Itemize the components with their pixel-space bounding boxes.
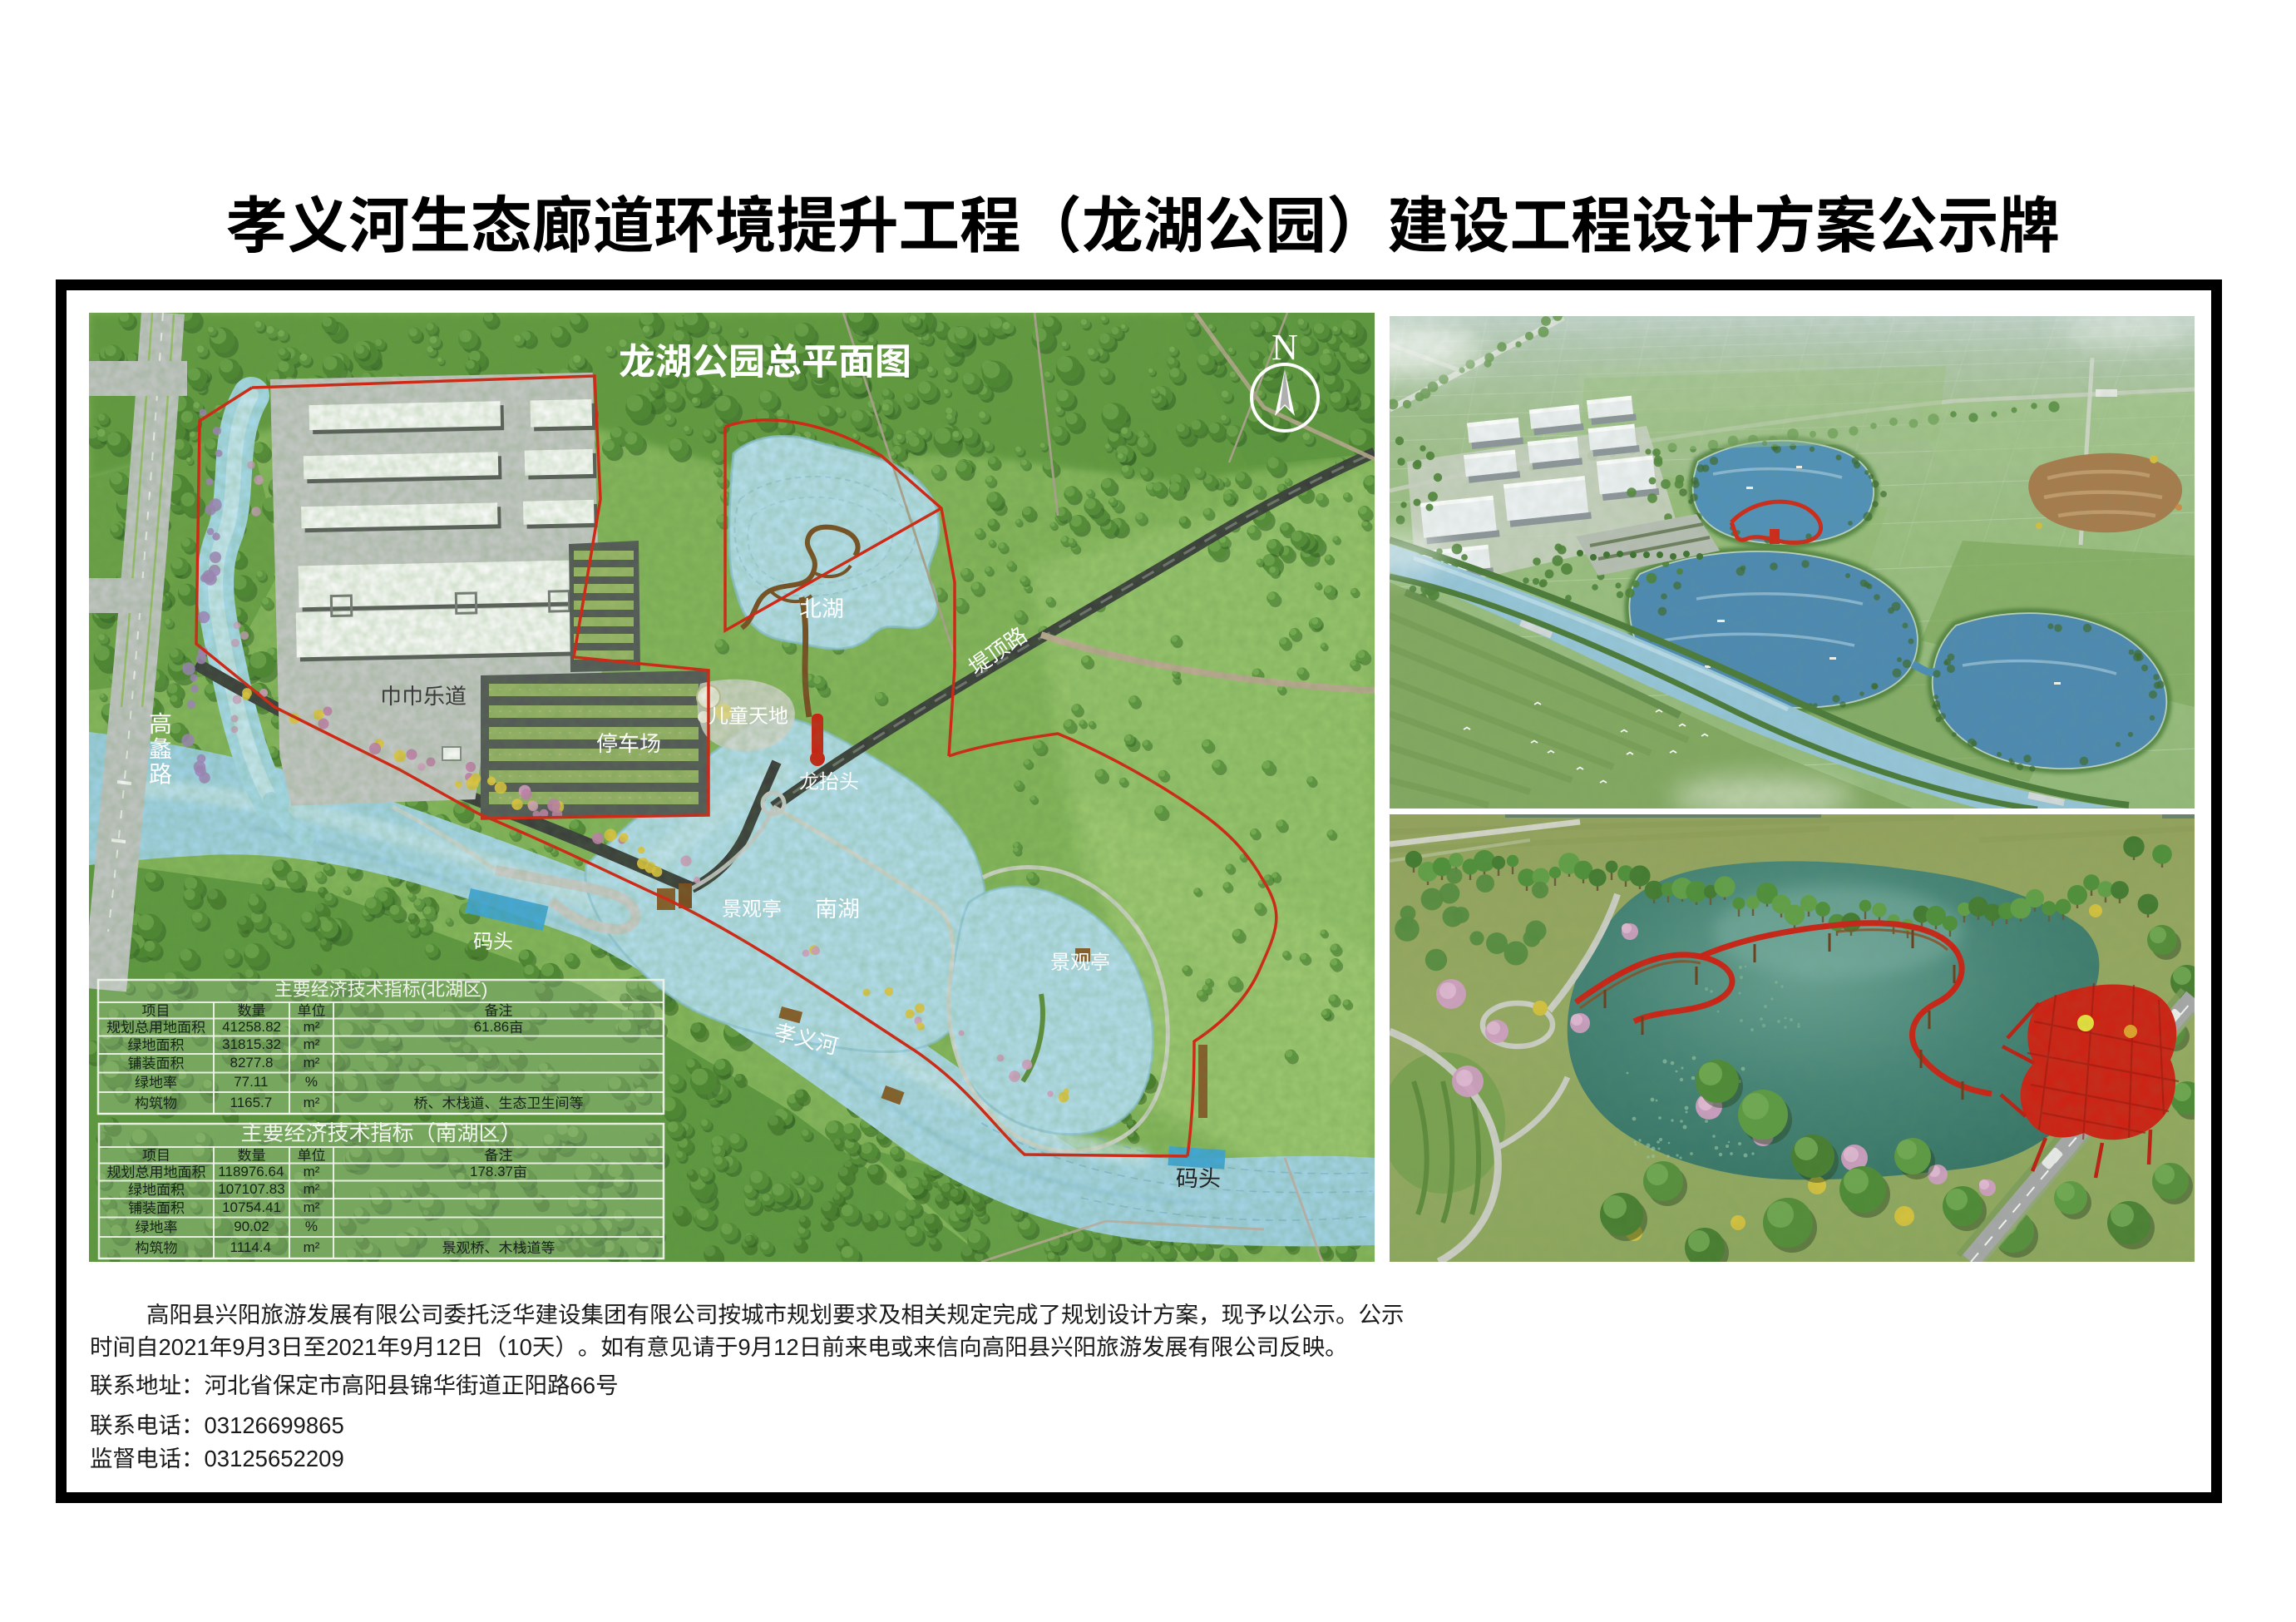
svg-text:1165.7: 1165.7 <box>230 1095 273 1110</box>
svg-text:m²: m² <box>304 1055 320 1071</box>
svg-text:3: 3 <box>268 1334 280 1360</box>
svg-text:m²: m² <box>304 1095 320 1110</box>
svg-text:107107.83: 107107.83 <box>218 1181 284 1197</box>
svg-text:66: 66 <box>570 1372 596 1398</box>
svg-text:12: 12 <box>436 1334 462 1360</box>
svg-text:31815.32: 31815.32 <box>222 1036 281 1052</box>
svg-text:9: 9 <box>232 1334 244 1360</box>
svg-text:90.02: 90.02 <box>234 1219 269 1234</box>
svg-text:2021: 2021 <box>159 1334 210 1360</box>
svg-text:%: % <box>305 1074 318 1090</box>
svg-text:12: 12 <box>773 1334 799 1360</box>
svg-text:m²: m² <box>304 1164 320 1179</box>
svg-text:9: 9 <box>738 1334 750 1360</box>
svg-text:2021: 2021 <box>326 1334 377 1360</box>
svg-text:m²: m² <box>304 1036 320 1052</box>
svg-text:03126699865: 03126699865 <box>205 1412 344 1438</box>
svg-text:10754.41: 10754.41 <box>222 1199 281 1215</box>
svg-text:m²: m² <box>304 1239 320 1255</box>
svg-text:1114.4: 1114.4 <box>230 1239 271 1255</box>
svg-text:): ) <box>481 979 487 1000</box>
svg-text:41258.82: 41258.82 <box>222 1019 281 1035</box>
svg-text:9: 9 <box>400 1334 412 1360</box>
svg-text:118976.64: 118976.64 <box>218 1164 284 1179</box>
svg-text:(: ( <box>421 979 427 1000</box>
svg-text:61.86: 61.86 <box>474 1019 510 1035</box>
svg-text:m²: m² <box>304 1199 320 1215</box>
svg-text:N: N <box>1271 327 1298 368</box>
svg-text:10: 10 <box>506 1334 532 1360</box>
svg-text:m²: m² <box>304 1019 320 1035</box>
svg-text:178.37: 178.37 <box>470 1164 513 1179</box>
svg-text:%: % <box>305 1219 318 1234</box>
svg-text:77.11: 77.11 <box>234 1074 268 1090</box>
svg-text:m²: m² <box>304 1181 320 1197</box>
svg-text:03125652209: 03125652209 <box>205 1446 344 1471</box>
svg-text:8277.8: 8277.8 <box>230 1055 274 1071</box>
